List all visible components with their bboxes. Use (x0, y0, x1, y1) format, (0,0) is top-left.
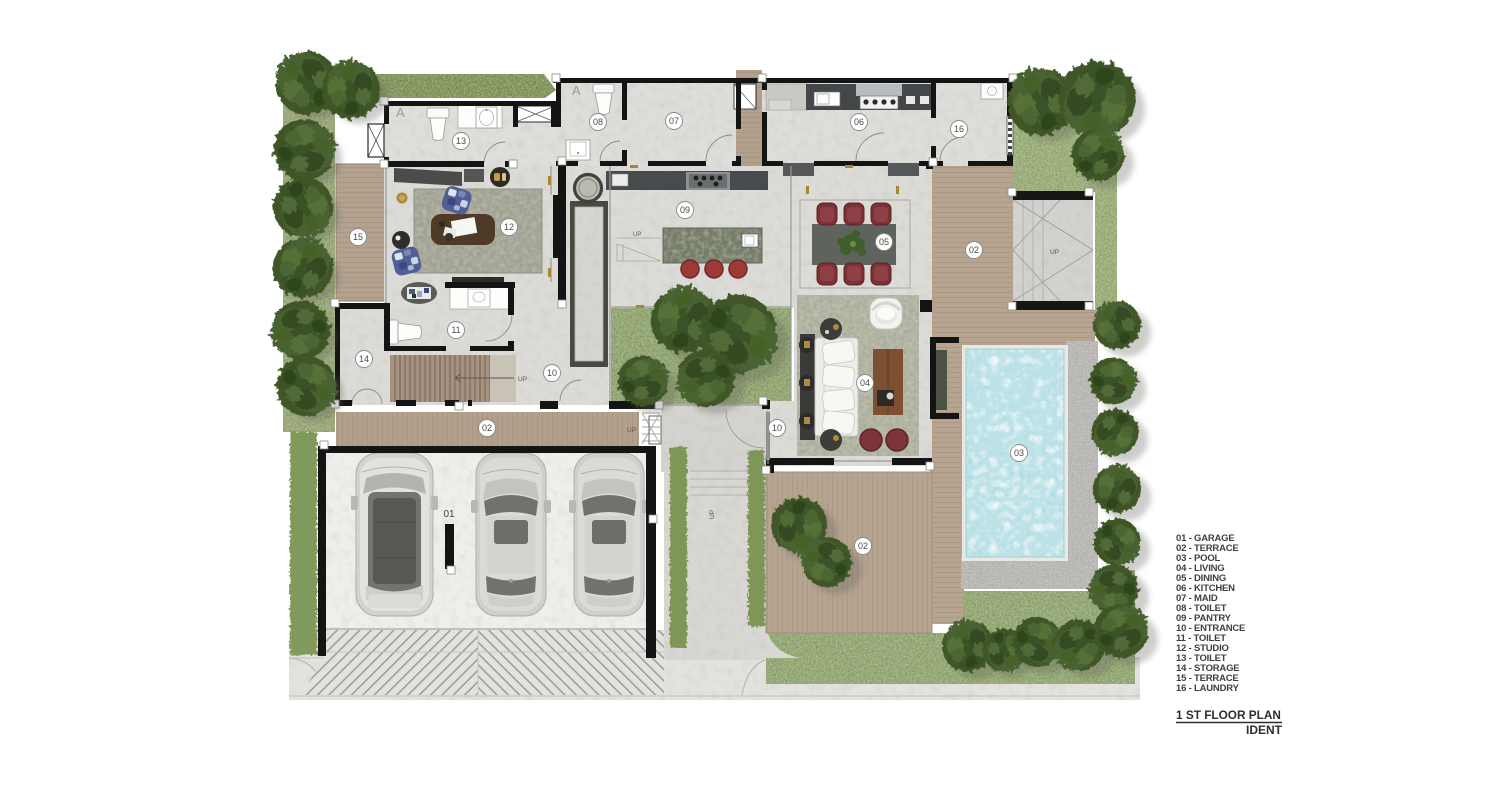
svg-text:11: 11 (451, 325, 460, 335)
svg-text:UP: UP (709, 510, 716, 519)
svg-text:UP: UP (518, 376, 527, 383)
svg-text:13: 13 (456, 136, 466, 146)
svg-text:03: 03 (1014, 448, 1024, 458)
svg-text:08: 08 (593, 117, 603, 127)
svg-text:06: 06 (854, 117, 864, 127)
svg-text:16: 16 (954, 124, 964, 134)
svg-text:15: 15 (353, 232, 363, 242)
svg-text:10: 10 (547, 368, 557, 378)
svg-text:A: A (396, 105, 405, 120)
svg-text:09: 09 (680, 205, 690, 215)
svg-text:IDENT: IDENT (1246, 723, 1283, 737)
svg-text:02: 02 (969, 245, 979, 255)
svg-text:10: 10 (772, 423, 782, 433)
svg-text:02: 02 (482, 423, 492, 433)
svg-text:16 - LAUNDRY: 16 - LAUNDRY (1176, 683, 1240, 694)
svg-text:07: 07 (669, 116, 679, 126)
svg-text:14: 14 (359, 354, 369, 364)
svg-text:UP: UP (1050, 249, 1059, 256)
svg-text:02: 02 (858, 541, 868, 551)
svg-text:05: 05 (879, 237, 889, 247)
svg-text:UP: UP (627, 427, 636, 434)
svg-text:01: 01 (443, 509, 455, 520)
svg-text:1 ST FLOOR PLAN: 1 ST FLOOR PLAN (1176, 708, 1281, 722)
svg-text:UP: UP (633, 232, 641, 238)
svg-text:A: A (572, 83, 581, 98)
svg-text:12: 12 (504, 222, 514, 232)
svg-text:04: 04 (860, 378, 870, 388)
